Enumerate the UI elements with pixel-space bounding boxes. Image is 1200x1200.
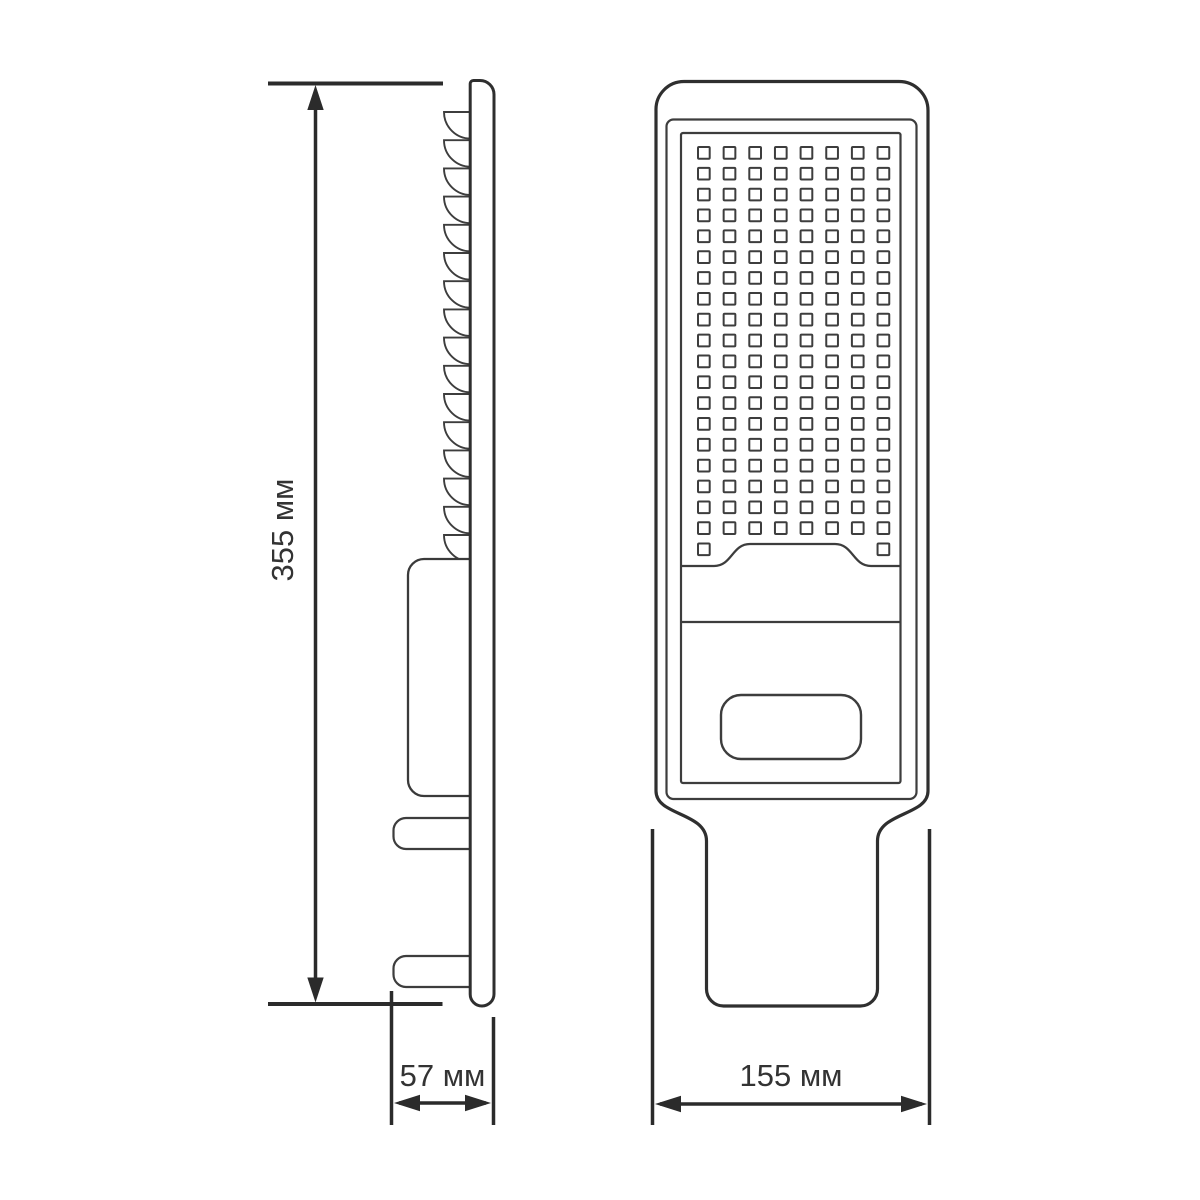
technical-drawing: 355 мм 57 мм 155 мм [0, 0, 1200, 1200]
depth-dimension-label: 57 мм [400, 1058, 486, 1093]
heatsink-fin [444, 281, 472, 308]
heatsink-fin [444, 422, 472, 449]
heatsink-fin [444, 366, 472, 393]
dimension-depth: 57 мм [392, 991, 494, 1125]
heatsink-fin [444, 479, 472, 506]
access-cutout [721, 695, 861, 759]
dimension-height: 355 мм [265, 84, 443, 1005]
heatsink-fin [444, 450, 472, 477]
arrow-right-icon [465, 1095, 491, 1111]
arrow-right-icon [901, 1096, 927, 1112]
arrow-down-icon [307, 978, 323, 1003]
heatsink-fin [444, 338, 472, 365]
side-plate [470, 81, 494, 1007]
mounting-tabs [394, 818, 474, 987]
mounting-tab [394, 956, 474, 987]
height-dimension-label: 355 мм [265, 479, 300, 582]
driver-box [408, 559, 473, 796]
heatsink-fin [444, 112, 472, 139]
front-view [656, 82, 928, 1007]
heatsink-fin [444, 535, 472, 562]
heatsink-fins [444, 112, 472, 562]
width-dimension-label: 155 мм [740, 1058, 843, 1093]
arrow-left-icon [655, 1096, 681, 1112]
heatsink-fin [444, 197, 472, 224]
heatsink-fin [444, 253, 472, 280]
heatsink-fin [444, 140, 472, 167]
heatsink-fin [444, 225, 472, 252]
heatsink-fin [444, 168, 472, 195]
drawing-canvas: 355 мм 57 мм 155 мм [0, 0, 1200, 1200]
arrow-left-icon [394, 1095, 420, 1111]
heatsink-fin [444, 309, 472, 336]
mounting-tab [394, 818, 474, 849]
heatsink-fin [444, 507, 472, 534]
arrow-up-icon [307, 85, 323, 110]
heatsink-fin [444, 394, 472, 421]
side-view [394, 81, 495, 1007]
